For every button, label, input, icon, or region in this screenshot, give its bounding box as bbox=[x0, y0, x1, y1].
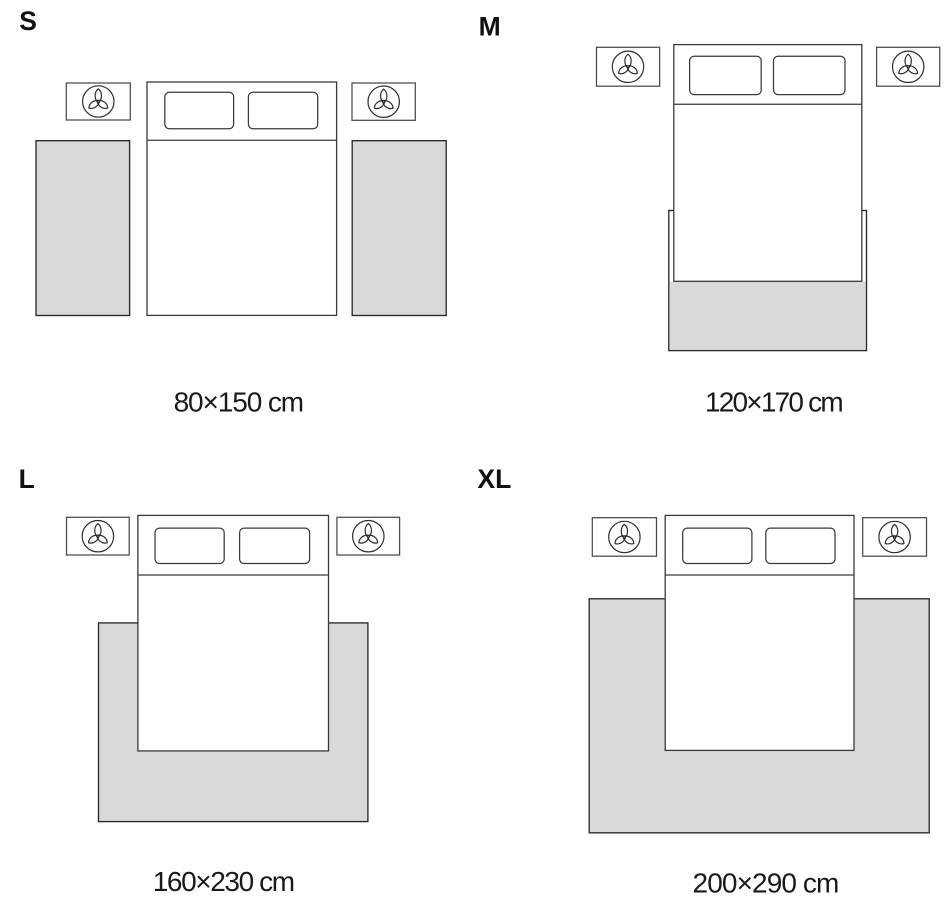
svg-text:160×230 cm: 160×230 cm bbox=[153, 866, 294, 897]
svg-text:L: L bbox=[19, 464, 35, 494]
svg-text:S: S bbox=[19, 6, 37, 36]
svg-text:XL: XL bbox=[477, 464, 511, 494]
svg-text:120×170 cm: 120×170 cm bbox=[705, 386, 842, 417]
svg-text:M: M bbox=[479, 11, 501, 41]
svg-text:80×150 cm: 80×150 cm bbox=[174, 386, 303, 417]
svg-text:200×290 cm: 200×290 cm bbox=[693, 867, 839, 898]
